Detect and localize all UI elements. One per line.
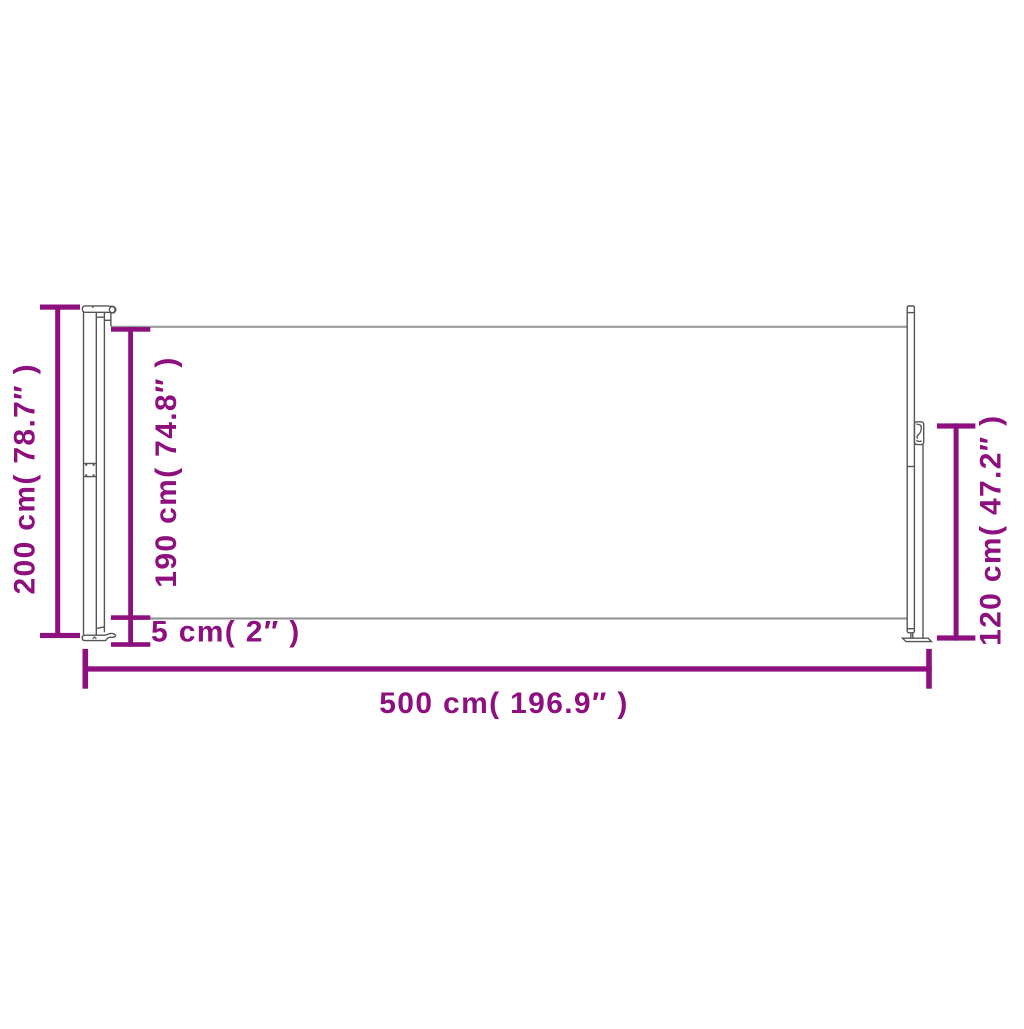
svg-text:200 cm( 78.7″ ): 200 cm( 78.7″ ) — [8, 363, 41, 594]
svg-text:5 cm( 2″ ): 5 cm( 2″ ) — [151, 615, 301, 648]
svg-text:120 cm( 47.2″ ): 120 cm( 47.2″ ) — [975, 414, 1008, 645]
svg-text:190 cm( 74.8″ ): 190 cm( 74.8″ ) — [150, 356, 183, 587]
svg-text:500 cm( 196.9″ ): 500 cm( 196.9″ ) — [379, 687, 628, 720]
